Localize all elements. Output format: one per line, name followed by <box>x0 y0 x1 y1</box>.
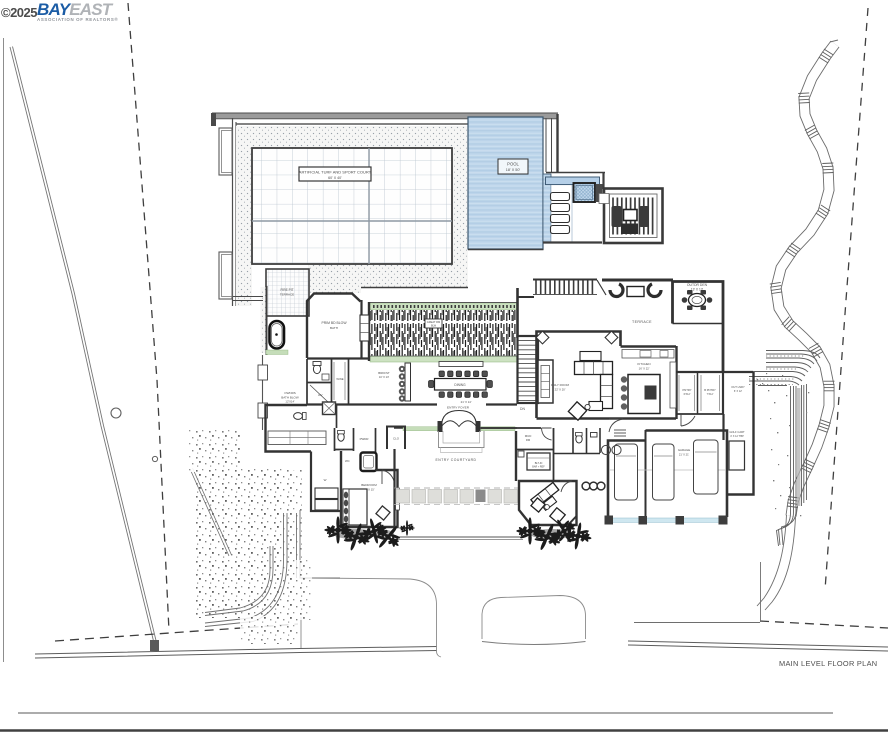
svg-text:PNTRY: PNTRY <box>682 388 691 392</box>
svg-text:FMLY ROOM: FMLY ROOM <box>551 383 569 387</box>
svg-text:TERRACE: TERRACE <box>280 292 294 296</box>
svg-text:KITCHEN: KITCHEN <box>637 362 650 366</box>
svg-text:6'X12': 6'X12' <box>684 393 691 396</box>
svg-text:ENTRY FOYER: ENTRY FOYER <box>447 406 470 410</box>
svg-text:GOLF CART: GOLF CART <box>729 430 745 434</box>
svg-text:A/V: A/V <box>318 393 323 397</box>
svg-text:WC: WC <box>345 459 350 463</box>
svg-text:16' X 22': 16' X 22' <box>639 366 650 370</box>
svg-text:21' X 21': 21' X 21' <box>679 452 690 456</box>
svg-text:BAR + REF: BAR + REF <box>532 466 545 469</box>
svg-text:PWDR: PWDR <box>360 437 369 441</box>
svg-text:10' X 13': 10' X 13' <box>379 375 390 379</box>
svg-text:ENTRY COURTYARD: ENTRY COURTYARD <box>436 458 477 462</box>
svg-text:POOL: POOL <box>507 162 519 167</box>
svg-text:MUD: MUD <box>525 434 532 438</box>
svg-text:B PNTRY: B PNTRY <box>704 388 716 392</box>
svg-text:DN: DN <box>520 407 525 411</box>
svg-text:MAIN LEVEL FLOOR PLAN: MAIN LEVEL FLOOR PLAN <box>779 659 877 668</box>
svg-text:BRKFST: BRKFST <box>378 371 390 375</box>
svg-text:W: W <box>324 478 327 482</box>
svg-text:DINING: DINING <box>454 383 466 387</box>
svg-text:12'X14': 12'X14' <box>285 400 295 404</box>
svg-text:OUT LNRY: OUT LNRY <box>731 385 745 389</box>
svg-text:22' X 20': 22' X 20' <box>555 387 566 391</box>
svg-text:ARTIFICIAL TURF AND SPORT COUR: ARTIFICIAL TURF AND SPORT COURT <box>299 170 372 175</box>
svg-text:4' X 12' TBP: 4' X 12' TBP <box>730 435 744 438</box>
svg-text:BEDROOM: BEDROOM <box>361 483 377 487</box>
svg-text:PRIM BD BLOW: PRIM BD BLOW <box>321 321 347 325</box>
svg-text:BLW: BLW <box>431 325 437 328</box>
svg-text:6' X 12': 6' X 12' <box>734 390 743 393</box>
svg-text:OUTDR DEN: OUTDR DEN <box>687 283 708 287</box>
svg-text:7'X12': 7'X12' <box>707 393 714 396</box>
svg-text:CLO: CLO <box>393 437 400 441</box>
svg-text:18' X 50': 18' X 50' <box>506 168 521 172</box>
svg-text:TERRACE: TERRACE <box>632 320 652 324</box>
svg-text:60' X 40': 60' X 40' <box>328 176 342 180</box>
svg-text:GREAT RM: GREAT RM <box>427 320 440 324</box>
svg-text:GARAGE: GARAGE <box>678 448 690 452</box>
svg-text:BATH: BATH <box>330 326 338 330</box>
svg-text:21' X 14': 21' X 14' <box>461 400 472 404</box>
svg-text:WINE: WINE <box>336 377 343 381</box>
